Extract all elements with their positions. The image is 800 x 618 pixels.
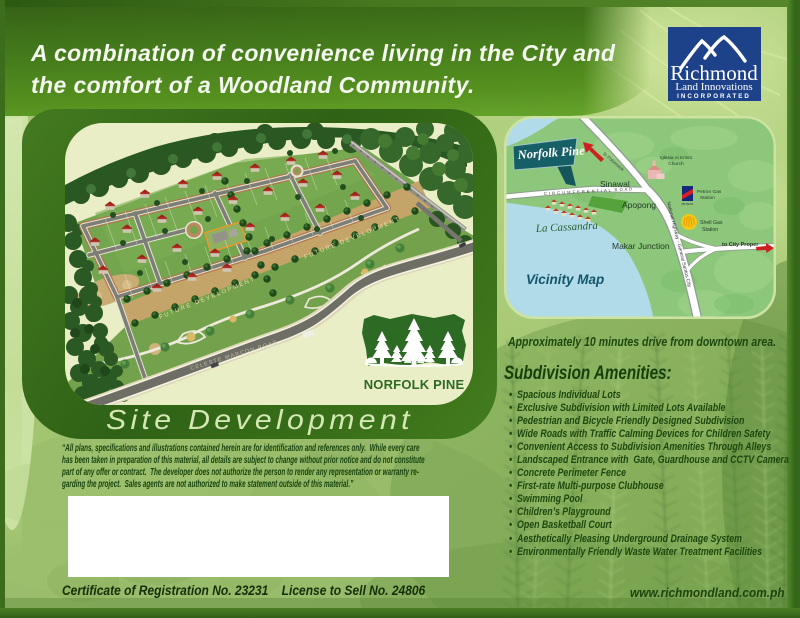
svg-text:NORFOLK PINE: NORFOLK PINE bbox=[364, 377, 465, 392]
svg-text:Shell Gas: Shell Gas bbox=[700, 220, 723, 226]
svg-text:PETRON: PETRON bbox=[682, 202, 694, 206]
svg-text:Makar Junction: Makar Junction bbox=[612, 241, 670, 251]
svg-text:Land Innovations: Land Innovations bbox=[675, 81, 752, 93]
svg-text:Station: Station bbox=[702, 227, 718, 233]
svg-text:Vicinity Map: Vicinity Map bbox=[526, 272, 604, 287]
svg-text:INCORPORATED: INCORPORATED bbox=[677, 93, 751, 100]
svg-text:Apopong: Apopong bbox=[622, 200, 656, 210]
svg-text:Petron Gas: Petron Gas bbox=[697, 189, 722, 195]
svg-text:Station: Station bbox=[700, 195, 715, 201]
svg-text:Iglesia ni Kristo: Iglesia ni Kristo bbox=[660, 155, 693, 161]
svg-text:Church: Church bbox=[668, 161, 684, 167]
svg-text:to City Proper: to City Proper bbox=[722, 242, 759, 248]
svg-text:Sinawal: Sinawal bbox=[600, 179, 630, 189]
